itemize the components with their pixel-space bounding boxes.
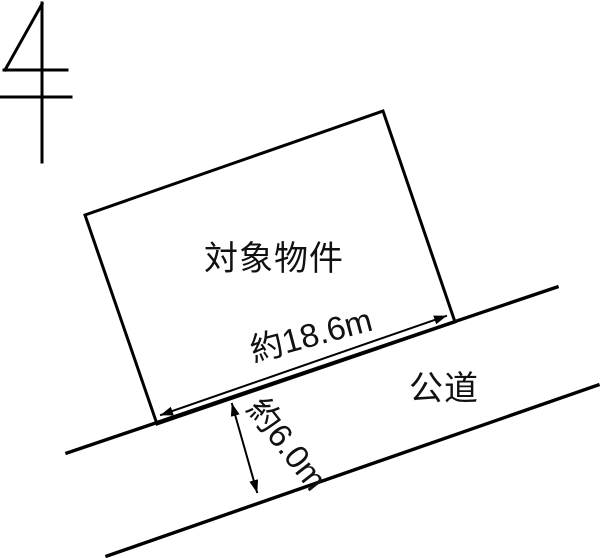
land-plot-diagram: 対象物件 約18.6m 公道 約6.0m [0, 0, 600, 558]
north-arrow-hypotenuse [5, 4, 42, 70]
property-label: 対象物件 [204, 240, 344, 278]
north-arrow-icon [0, 3, 71, 162]
road-label: 公道 [409, 370, 479, 408]
diagram-svg: 対象物件 約18.6m 公道 約6.0m [0, 0, 600, 558]
